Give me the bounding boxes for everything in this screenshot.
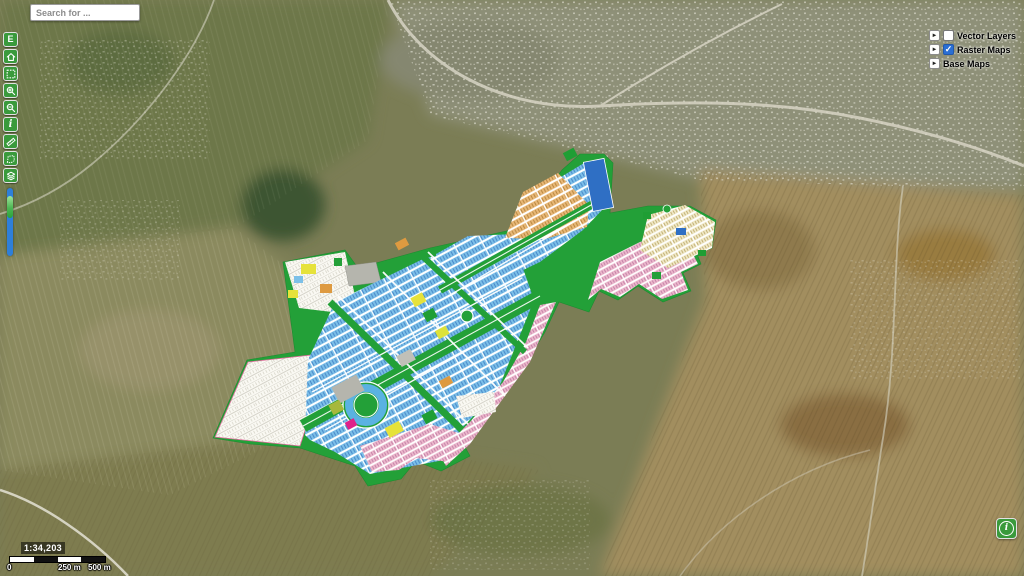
small-roundabout-east (663, 205, 671, 213)
search-input[interactable] (30, 4, 140, 21)
legend-button[interactable] (3, 168, 18, 183)
extent-icon (6, 69, 16, 79)
measure-length-button[interactable] (3, 134, 18, 149)
vector-layers-checkbox[interactable] (943, 30, 954, 41)
raster-maps-label: Raster Maps (957, 45, 1011, 55)
raster-maps-checkbox[interactable]: ✓ (943, 44, 954, 55)
map-viewer: E i ► Vector Laye (0, 0, 1024, 576)
measure-area-button[interactable] (3, 151, 18, 166)
zoom-slider-handle[interactable] (7, 196, 13, 218)
scale-bar-segment (34, 557, 58, 562)
base-maps-label: Base Maps (943, 59, 990, 69)
zoom-out-icon (6, 103, 16, 113)
edit-mode-label: E (7, 35, 13, 44)
zoom-in-icon (6, 86, 16, 96)
scale-ratio-label: 1:34,203 (21, 542, 65, 554)
vector-layers-label: Vector Layers (957, 31, 1016, 41)
info-icon: i (999, 521, 1014, 536)
ruler-icon (6, 137, 16, 147)
scale-label-end: 500 m (88, 563, 111, 572)
zoom-out-button[interactable] (3, 100, 18, 115)
about-info-button[interactable]: i (996, 518, 1017, 539)
map-toolbar: E i (3, 32, 18, 183)
scale-bar-segment (81, 557, 105, 562)
expand-arrow-icon[interactable]: ► (929, 30, 940, 41)
identify-button[interactable]: i (3, 117, 18, 132)
home-icon (6, 52, 16, 62)
check-icon: ✓ (945, 45, 953, 54)
zoom-extent-button[interactable] (3, 66, 18, 81)
zoom-slider[interactable] (7, 188, 13, 256)
small-roundabout (461, 310, 473, 322)
zoom-in-button[interactable] (3, 83, 18, 98)
layers-panel: ► Vector Layers ► ✓ Raster Maps ► Base M… (929, 30, 1016, 69)
expand-arrow-icon[interactable]: ► (929, 44, 940, 55)
home-button[interactable] (3, 49, 18, 64)
scale-label-zero: 0 (7, 563, 11, 572)
scale-bar-segment (58, 557, 82, 562)
area-icon (6, 154, 16, 164)
layer-row-vector-layers: ► Vector Layers (929, 30, 1016, 41)
expand-arrow-icon[interactable]: ► (929, 58, 940, 69)
edit-mode-button[interactable]: E (3, 32, 18, 47)
map-canvas[interactable] (0, 0, 1024, 576)
layers-icon (6, 171, 16, 181)
layer-row-base-maps: ► Base Maps (929, 58, 1016, 69)
scale-bar (9, 556, 106, 563)
info-icon: i (9, 119, 13, 130)
scale-bar-segment (10, 557, 34, 562)
scale-label-mid: 250 m (58, 563, 81, 572)
layer-row-raster-maps: ► ✓ Raster Maps (929, 44, 1016, 55)
